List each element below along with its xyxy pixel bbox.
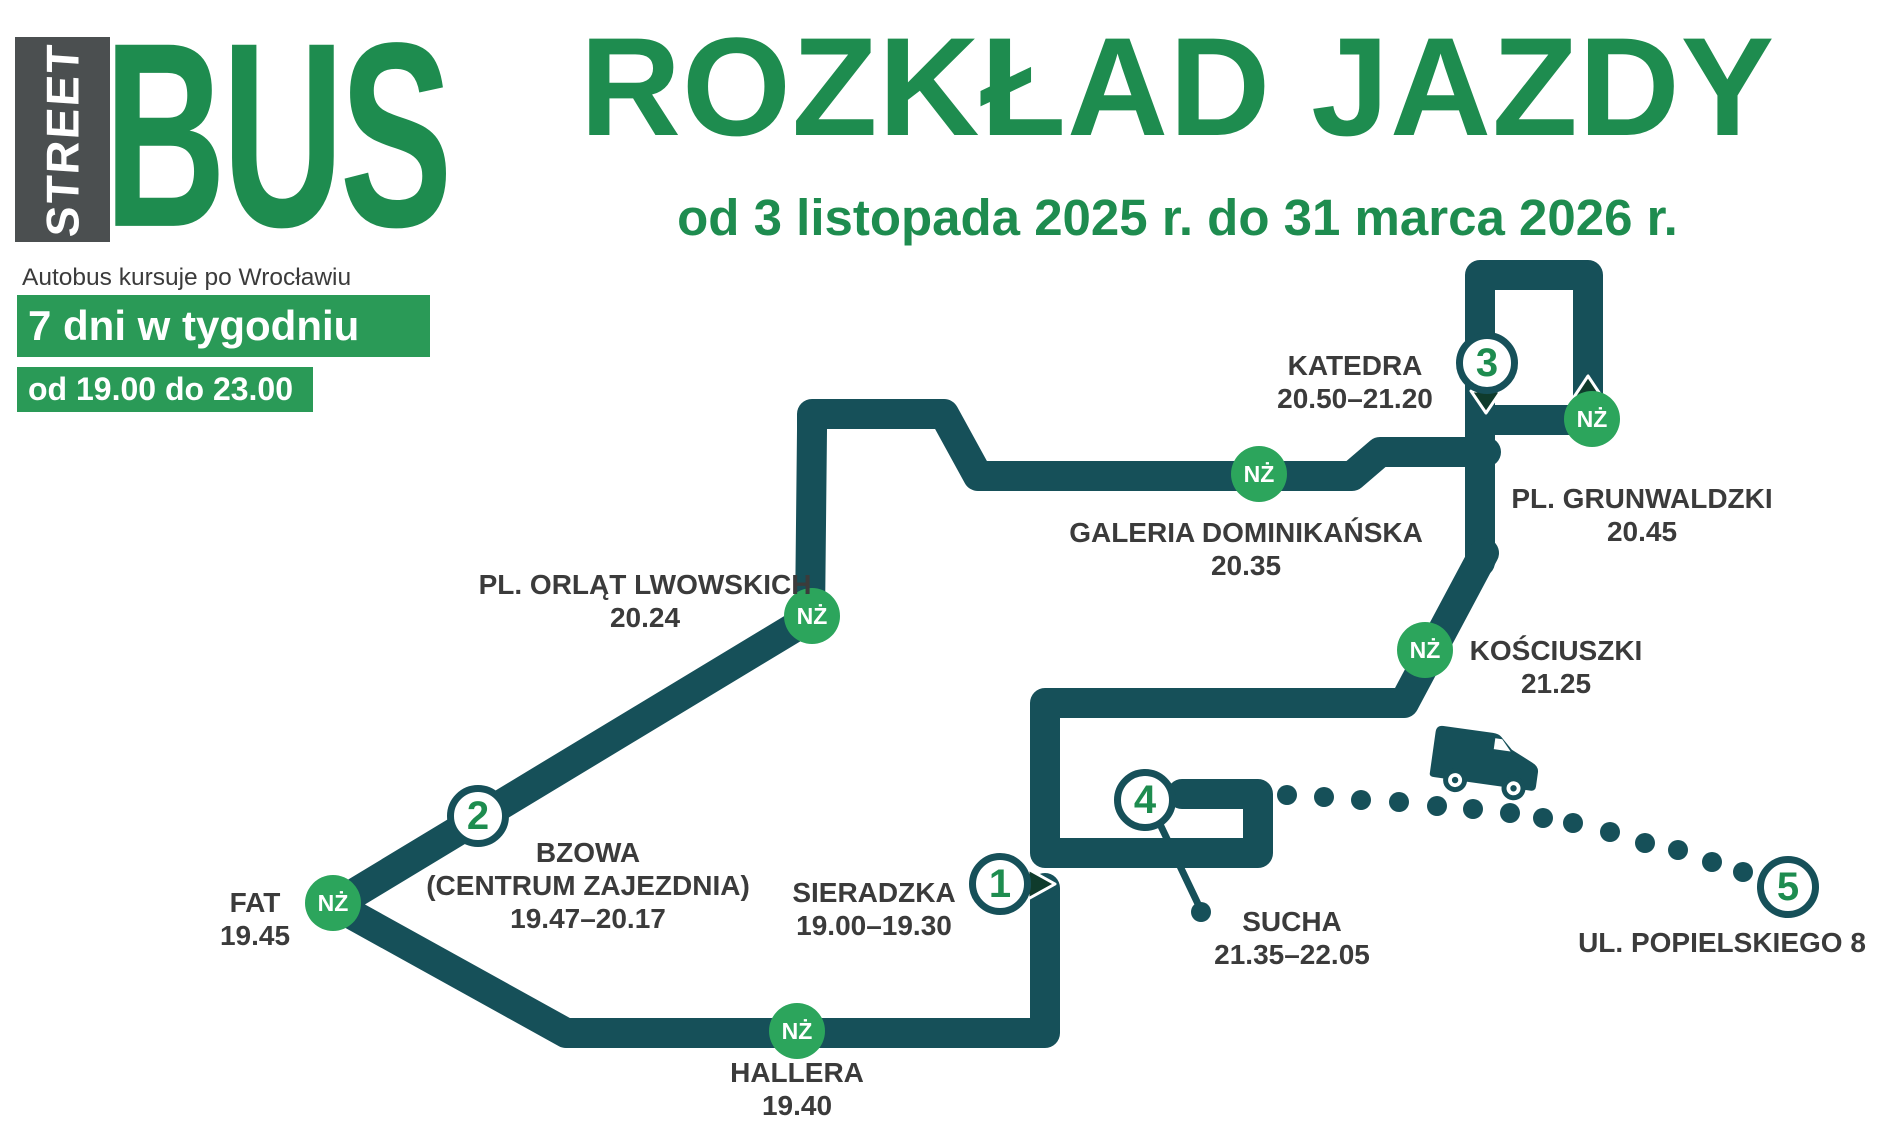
terminal-circle-3: 3 <box>1456 332 1518 394</box>
terminal-circle-4: 4 <box>1114 769 1176 831</box>
terminal-circle-1: 1 <box>969 853 1031 915</box>
terminal-number: 3 <box>1476 341 1498 386</box>
bus-van-icon <box>1428 725 1543 803</box>
stop-name: BZOWA <box>426 836 750 869</box>
nz-badge-galeria: NŻ <box>1231 446 1287 502</box>
terminal-number: 4 <box>1134 778 1156 823</box>
stop-name: KATEDRA <box>1277 349 1433 382</box>
stop-time: 19.40 <box>730 1089 864 1122</box>
stop-label-galeria: GALERIA DOMINIKAŃSKA 20.35 <box>1069 516 1423 582</box>
stop-time: 19.47–20.17 <box>426 902 750 935</box>
stop-label-popielskiego: UL. POPIELSKIEGO 8 <box>1578 926 1866 959</box>
stop-time: 20.50–21.20 <box>1277 382 1433 415</box>
stop-label-katedra: KATEDRA 20.50–21.20 <box>1277 349 1433 415</box>
logo-street-text: STREET <box>36 41 90 238</box>
page-title: ROZKŁAD JAZDY <box>505 14 1850 160</box>
terminal-circle-5: 5 <box>1757 856 1819 918</box>
terminal-number: 2 <box>467 794 489 839</box>
terminal-number: 5 <box>1777 865 1799 910</box>
nz-badge-grunwaldzki: NŻ <box>1564 391 1620 447</box>
stop-label-sieradzka: SIERADZKA 19.00–19.30 <box>792 876 955 942</box>
logo-street-box: STREET <box>15 37 110 242</box>
stop-name: FAT <box>220 886 290 919</box>
stop-label-hallera: HALLERA 19.40 <box>730 1056 864 1122</box>
badge-days: 7 dni w tygodniu <box>17 295 430 357</box>
stop-name: PL. ORLĄT LWOWSKICH <box>479 568 812 601</box>
stop-name: HALLERA <box>730 1056 864 1089</box>
logo-bus-text: BUS <box>104 15 357 252</box>
page-subtitle: od 3 listopada 2025 r. do 31 marca 2026 … <box>505 188 1850 247</box>
sucha-pointer-dot <box>1191 902 1211 922</box>
timetable-poster: STREET BUS Autobus kursuje po Wrocławiu … <box>0 0 1900 1126</box>
stop-label-fat: FAT 19.45 <box>220 886 290 952</box>
stop-time: 20.35 <box>1069 549 1423 582</box>
stop-name: PL. GRUNWALDZKI <box>1511 482 1772 515</box>
stop-label-grunwaldzki: PL. GRUNWALDZKI 20.45 <box>1511 482 1772 548</box>
stop-label-sucha: SUCHA 21.35–22.05 <box>1214 905 1370 971</box>
badge-hours: od 19.00 do 23.00 <box>17 367 313 412</box>
stop-name: KOŚCIUSZKI <box>1470 634 1643 667</box>
stop-label-orlat: PL. ORLĄT LWOWSKICH 20.24 <box>479 568 812 634</box>
stop-time: 20.24 <box>479 601 812 634</box>
stop-time: 20.45 <box>1511 515 1772 548</box>
route-line-terminal <box>1045 553 1484 853</box>
stop-name: SIERADZKA <box>792 876 955 909</box>
stop-time: 19.00–19.30 <box>792 909 955 942</box>
stop-name: SUCHA <box>1214 905 1370 938</box>
stop-name-secondary: (CENTRUM ZAJEZDNIA) <box>426 869 750 902</box>
nz-badge-kosciuszki: NŻ <box>1397 622 1453 678</box>
nz-badge-hallera: NŻ <box>769 1003 825 1059</box>
stop-label-bzowa: BZOWA (CENTRUM ZAJEZDNIA) 19.47–20.17 <box>426 836 750 935</box>
stop-label-kosciuszki: KOŚCIUSZKI 21.25 <box>1470 634 1643 700</box>
stop-name: UL. POPIELSKIEGO 8 <box>1578 926 1866 959</box>
tagline: Autobus kursuje po Wrocławiu <box>22 264 351 292</box>
stop-name: GALERIA DOMINIKAŃSKA <box>1069 516 1423 549</box>
stop-time: 21.35–22.05 <box>1214 938 1370 971</box>
stop-time: 19.45 <box>220 919 290 952</box>
stop-time: 21.25 <box>1470 667 1643 700</box>
nz-badge-fat: NŻ <box>305 875 361 931</box>
terminal-number: 1 <box>989 862 1011 907</box>
